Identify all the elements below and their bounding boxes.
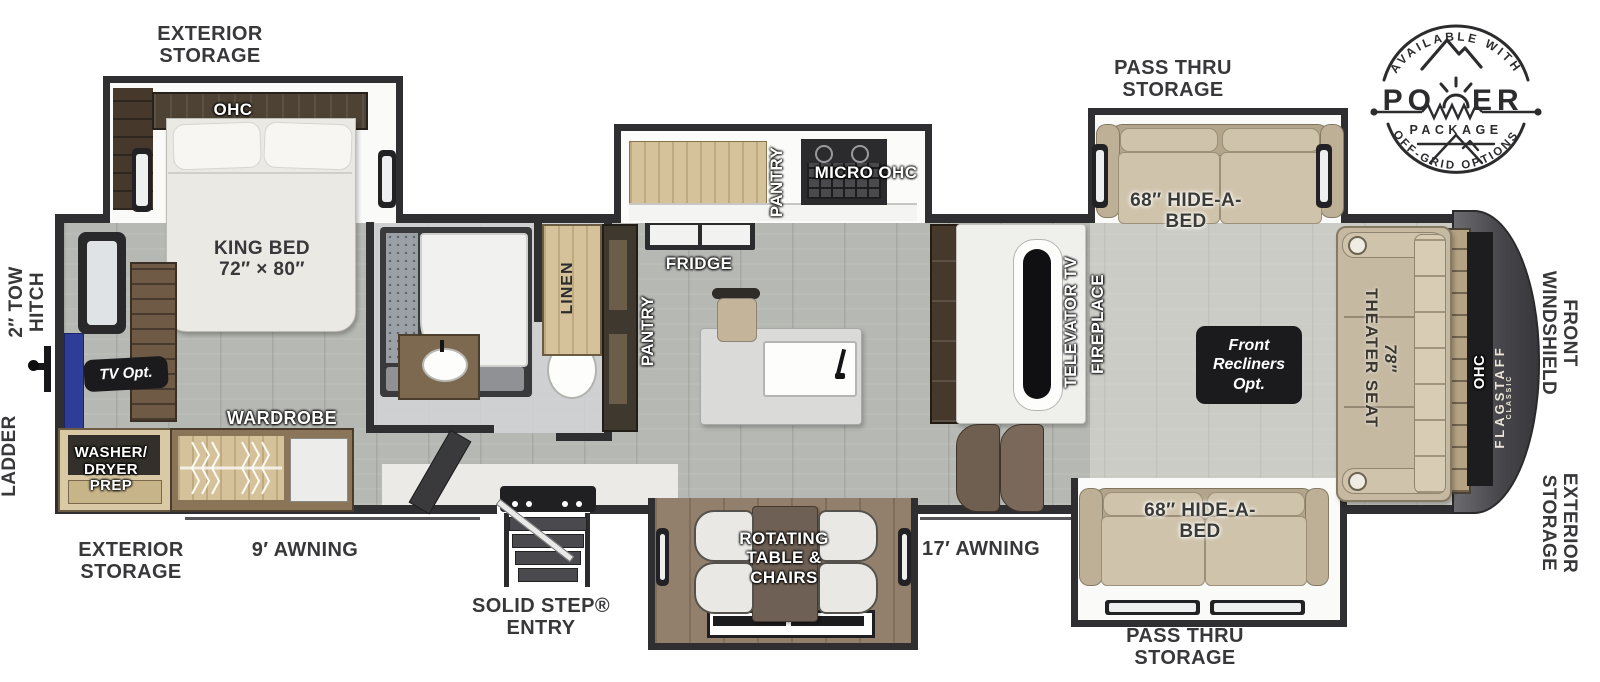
window-glass bbox=[1109, 603, 1196, 612]
label-fireplace: FIREPLACE bbox=[1088, 264, 1108, 384]
flagstaff-sub-text: CLASSIC bbox=[1506, 375, 1513, 420]
wall-top-3 bbox=[925, 214, 1090, 223]
kitchen-island bbox=[700, 328, 862, 425]
label-ohc-front: OHC bbox=[1471, 342, 1489, 402]
sofa-slide-bottom-window-2 bbox=[1210, 600, 1305, 615]
wardrobe-dresser bbox=[290, 438, 348, 502]
step-4 bbox=[518, 568, 578, 582]
label-micro-ohc: MICRO OHC bbox=[786, 161, 946, 185]
label-pass-thru-bottom: PASS THRU STORAGE bbox=[1075, 622, 1295, 672]
stool-seat bbox=[717, 298, 757, 342]
chair-brown-1 bbox=[956, 424, 1000, 512]
tv-slot bbox=[1023, 249, 1051, 399]
awning-rail-17ft bbox=[920, 517, 1072, 520]
vanity-sink bbox=[422, 348, 468, 382]
label-ohc-bedroom: OHC bbox=[193, 98, 273, 122]
pantry-drawer-2 bbox=[609, 334, 627, 404]
bathroom-wall-left bbox=[366, 222, 374, 430]
label-televator-tv: TELEVATOR TV bbox=[1061, 247, 1081, 397]
label-awning-17: 17′ AWNING bbox=[881, 537, 1081, 561]
island-stool bbox=[712, 288, 760, 342]
bedroom-slide-window-left bbox=[132, 148, 152, 212]
label-exterior-storage-bottom: EXTERIOR STORAGE bbox=[31, 536, 231, 586]
flagstaff-text: FLAGSTAFF bbox=[1493, 345, 1506, 448]
fridge-door-left bbox=[650, 225, 698, 245]
theater-backrest bbox=[1414, 234, 1446, 494]
bracket-pin-1 bbox=[512, 501, 518, 507]
bathroom-partition bbox=[534, 222, 542, 322]
bedroom-dresser bbox=[130, 262, 177, 422]
rear-window-glass bbox=[87, 241, 117, 325]
label-linen: LINEN bbox=[558, 233, 578, 343]
label-pantry-upper: PANTRY bbox=[767, 134, 787, 230]
label-ladder: LADDER bbox=[0, 396, 21, 516]
label-awning-9: 9′ AWNING bbox=[205, 538, 405, 562]
wall-top-2 bbox=[396, 214, 616, 223]
label-fridge: FRIDGE bbox=[639, 252, 759, 276]
label-tow-hitch: 2″ TOW HITCH bbox=[5, 247, 49, 357]
bracket-pin-4 bbox=[576, 501, 582, 507]
bed-pillow-right bbox=[263, 121, 353, 170]
sofa-slide-bottom-window-1 bbox=[1105, 600, 1200, 615]
label-exterior-storage-right: EXTERIOR STORAGE bbox=[1537, 428, 1581, 618]
pantry-drawer-1 bbox=[609, 240, 627, 310]
bedroom-slide-window-right bbox=[378, 150, 396, 208]
bathroom-wall-bottom-1 bbox=[366, 425, 494, 433]
hitch-knob bbox=[28, 360, 39, 371]
awning-rail-9ft bbox=[185, 517, 480, 520]
label-solid-step: SOLID STEP® ENTRY bbox=[431, 592, 651, 642]
entry-steps bbox=[504, 513, 590, 589]
label-theater-seat: 78″ THEATER SEAT bbox=[1360, 273, 1402, 443]
hanger-icons bbox=[178, 436, 284, 500]
kitchen-slide-pantry bbox=[629, 141, 767, 205]
fridge bbox=[645, 220, 755, 250]
bathroom-wall-bottom-2 bbox=[556, 433, 612, 441]
wardrobe-cabinet bbox=[170, 428, 354, 512]
label-washer-dryer: WASHER/ DRYER PREP bbox=[46, 440, 176, 500]
floorplan-canvas: EXTERIOR STORAGE OHC KING BED 72″ × 80″ … bbox=[0, 0, 1600, 682]
sofa-top-backcushion-1 bbox=[1120, 128, 1218, 152]
label-front-windshield: FRONT WINDSHIELD bbox=[1537, 238, 1581, 428]
theater-cupholder-top bbox=[1348, 236, 1367, 255]
sun-icon bbox=[1441, 78, 1471, 107]
window-glass bbox=[1214, 603, 1301, 612]
theater-seat-text: THEATER SEAT bbox=[1362, 288, 1381, 428]
sofa-slide-top-window-right bbox=[1316, 144, 1332, 208]
bracket-pin-2 bbox=[526, 501, 532, 507]
pantry-cabinet-lower bbox=[602, 224, 638, 432]
bed-pillow-left bbox=[172, 121, 262, 170]
vanity bbox=[398, 334, 480, 400]
sofa-top-backcushion-2 bbox=[1222, 128, 1320, 152]
label-king-bed: KING BED 72″ × 80″ bbox=[167, 236, 357, 282]
island-faucet-base bbox=[835, 373, 845, 379]
sofa-bottom-arm-right bbox=[1305, 488, 1329, 586]
bed-seam bbox=[168, 172, 352, 174]
tv-panel bbox=[64, 333, 84, 435]
label-rotating-table: ROTATING TABLE & CHAIRS bbox=[709, 526, 859, 590]
dinette-window-left bbox=[656, 528, 669, 586]
label-tv-opt: TV Opt. bbox=[83, 356, 169, 392]
label-pantry-lower: PANTRY bbox=[638, 283, 658, 379]
bracket-pin-3 bbox=[562, 501, 568, 507]
vanity-faucet bbox=[440, 340, 444, 352]
label-front-recliners: Front Recliners Opt. bbox=[1196, 326, 1302, 404]
wall-bottom-2 bbox=[590, 505, 650, 514]
label-exterior-storage-top: EXTERIOR STORAGE bbox=[110, 20, 310, 70]
fridge-door-right bbox=[702, 225, 750, 245]
label-hide-a-bed-top: 68″ HIDE-A- BED bbox=[1091, 188, 1281, 234]
solid-step-bracket bbox=[500, 486, 596, 512]
wall-top-4 bbox=[1341, 214, 1470, 223]
sofa-bottom-arm-left bbox=[1079, 488, 1103, 586]
power-package-badge: AVAILABLE WITH OFF-GRID OPTIONS PO ER PA… bbox=[1364, 8, 1548, 192]
wall-bottom-4 bbox=[1342, 505, 1470, 514]
label-pass-thru-top: PASS THRU STORAGE bbox=[1073, 54, 1273, 104]
label-wardrobe: WARDROBE bbox=[202, 406, 362, 430]
theater-cupholder-bottom bbox=[1348, 472, 1367, 491]
label-flagstaff: FLAGSTAFF CLASSIC bbox=[1490, 322, 1516, 472]
label-hide-a-bed-bottom: 68″ HIDE-A- BED bbox=[1105, 498, 1295, 544]
theater-size-text: 78″ bbox=[1381, 344, 1400, 372]
chair-brown-2 bbox=[1000, 424, 1044, 512]
